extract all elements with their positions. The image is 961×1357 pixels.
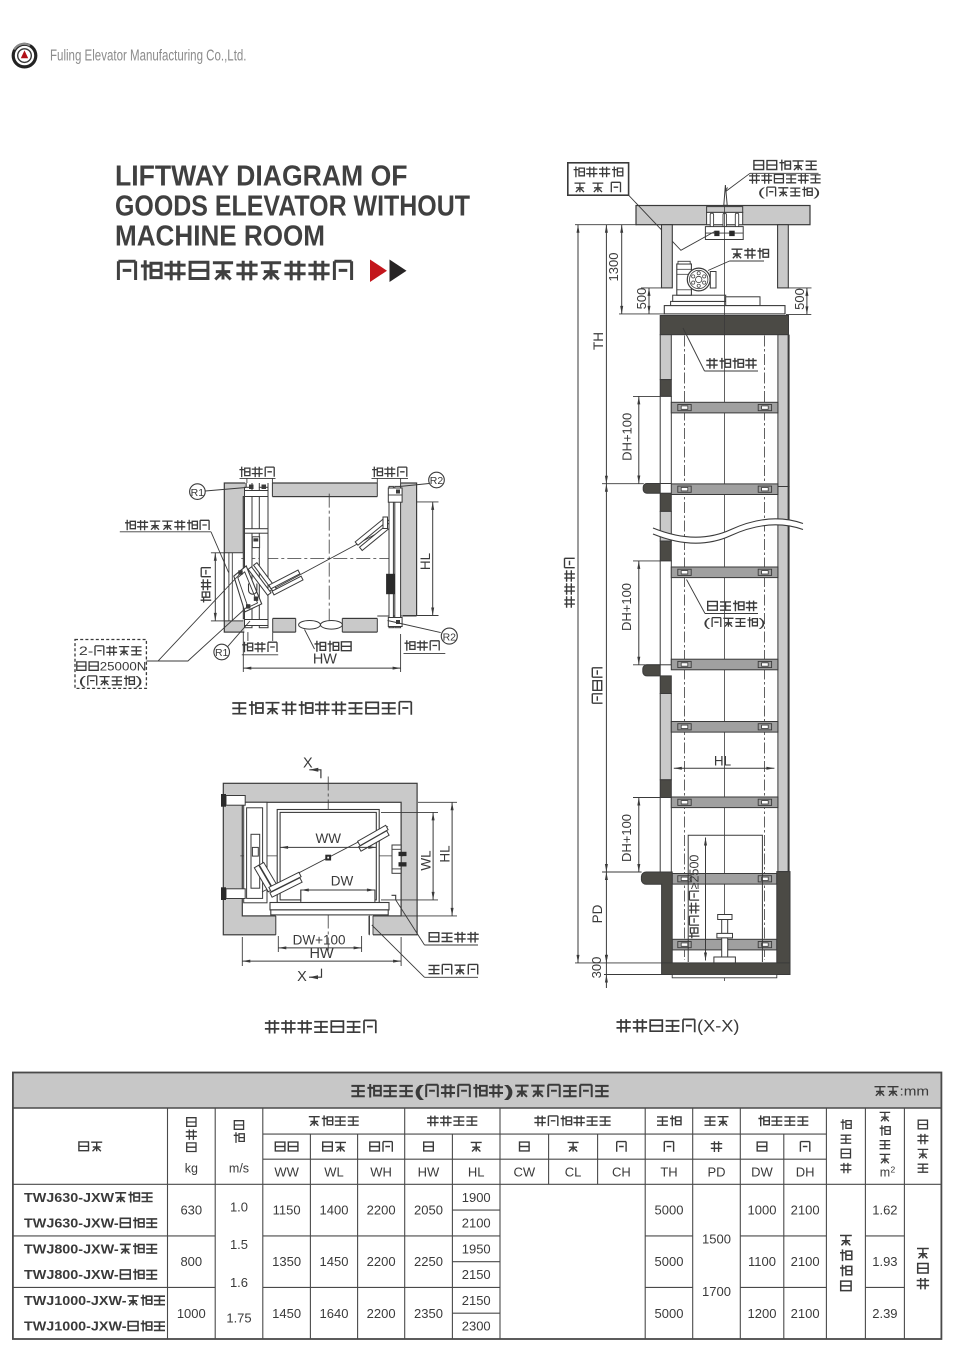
svg-text:1350: 1350: [272, 1254, 301, 1269]
svg-text:HW: HW: [310, 946, 334, 962]
svg-text:1000: 1000: [748, 1203, 777, 1218]
svg-text:TH: TH: [591, 332, 606, 350]
svg-text:HL: HL: [468, 1164, 485, 1179]
svg-text:(X-X): (X-X): [697, 1018, 740, 1036]
svg-text:1450: 1450: [272, 1306, 301, 1321]
svg-text:TH: TH: [660, 1164, 677, 1179]
svg-text:1.75: 1.75: [226, 1311, 251, 1326]
svg-text:): ): [135, 674, 143, 688]
svg-text:m/s: m/s: [229, 1162, 249, 1176]
svg-text:2100: 2100: [462, 1216, 491, 1231]
svg-text:TWJ1000-JXW-: TWJ1000-JXW-: [24, 1319, 127, 1334]
svg-text:1000: 1000: [177, 1306, 206, 1321]
svg-text:2200: 2200: [367, 1306, 396, 1321]
svg-text:CL: CL: [565, 1164, 582, 1179]
svg-text:2250: 2250: [414, 1254, 443, 1269]
svg-text:2200: 2200: [367, 1203, 396, 1218]
svg-text:2350: 2350: [414, 1306, 443, 1321]
svg-text:): ): [758, 616, 765, 630]
svg-text::mm: :mm: [900, 1084, 930, 1099]
svg-text:DH+100: DH+100: [620, 413, 635, 461]
svg-text:DH: DH: [796, 1164, 815, 1179]
svg-text:300: 300: [589, 957, 604, 979]
svg-text:1.6: 1.6: [230, 1275, 248, 1290]
svg-text:5000: 5000: [655, 1306, 684, 1321]
svg-text:1100: 1100: [748, 1254, 776, 1269]
svg-text:(: (: [414, 1084, 425, 1101]
svg-text:WL: WL: [324, 1164, 344, 1179]
svg-text:PD: PD: [590, 904, 605, 923]
svg-text:WL: WL: [419, 850, 434, 871]
svg-text:1200: 1200: [748, 1306, 777, 1321]
svg-text:1400: 1400: [320, 1203, 349, 1218]
svg-text:MACHINE ROOM: MACHINE ROOM: [115, 221, 325, 253]
svg-text:2150: 2150: [462, 1267, 491, 1282]
svg-text:DW: DW: [331, 874, 354, 889]
svg-text:LIFTWAY DIAGRAM OF: LIFTWAY DIAGRAM OF: [115, 161, 408, 193]
svg-text:500: 500: [634, 288, 649, 310]
svg-text:kg: kg: [185, 1162, 198, 1176]
svg-text:CH: CH: [612, 1164, 631, 1179]
svg-text:800: 800: [180, 1254, 202, 1269]
svg-text:2200: 2200: [367, 1254, 396, 1269]
svg-text:5000: 5000: [655, 1203, 684, 1218]
svg-text:2150: 2150: [462, 1293, 491, 1308]
svg-text:X: X: [297, 969, 307, 985]
svg-text:25000N: 25000N: [100, 660, 147, 674]
svg-text:): ): [504, 1084, 514, 1101]
svg-text:500: 500: [792, 288, 807, 310]
svg-text:1.62: 1.62: [872, 1203, 897, 1218]
svg-text:R1: R1: [191, 487, 205, 499]
svg-text:(: (: [703, 616, 710, 630]
svg-text:1450: 1450: [320, 1254, 349, 1269]
svg-text:Fuling Elevator Manufacturing: Fuling Elevator Manufacturing Co.,Ltd.: [50, 48, 247, 65]
svg-text:WW: WW: [316, 831, 342, 846]
svg-text:R1: R1: [215, 647, 229, 659]
svg-text:m: m: [880, 1166, 890, 1180]
svg-text:): ): [813, 185, 820, 199]
svg-text:1300: 1300: [606, 253, 621, 282]
svg-text:1.0: 1.0: [230, 1200, 248, 1215]
svg-text:DW: DW: [751, 1164, 773, 1179]
svg-text:CW: CW: [513, 1164, 535, 1179]
svg-text:1.5: 1.5: [230, 1237, 248, 1252]
svg-text:2100: 2100: [791, 1306, 820, 1321]
svg-text:2100: 2100: [791, 1203, 820, 1218]
svg-text:1950: 1950: [462, 1241, 491, 1256]
svg-text:2.39: 2.39: [872, 1306, 897, 1321]
svg-text:(: (: [758, 185, 765, 199]
svg-text:TWJ630-JXW-: TWJ630-JXW-: [24, 1216, 119, 1231]
svg-text:630: 630: [180, 1203, 202, 1218]
svg-text:R2: R2: [443, 631, 457, 643]
svg-text:1500: 1500: [702, 1232, 731, 1247]
svg-text:TWJ800-JXW-: TWJ800-JXW-: [24, 1241, 119, 1256]
svg-text:HL: HL: [438, 845, 453, 863]
svg-text:HW: HW: [313, 652, 337, 668]
svg-text:1900: 1900: [462, 1190, 491, 1205]
svg-text:WH: WH: [370, 1164, 392, 1179]
svg-text:2: 2: [891, 1165, 896, 1175]
svg-text:R2: R2: [430, 475, 444, 487]
svg-text:X: X: [303, 755, 313, 771]
svg-text:DH+100: DH+100: [619, 583, 634, 631]
svg-text:TWJ630-JXW: TWJ630-JXW: [24, 1190, 115, 1205]
svg-text:TWJ1000-JXW-: TWJ1000-JXW-: [24, 1293, 127, 1308]
svg-text:WW: WW: [274, 1164, 299, 1179]
svg-text:5000: 5000: [655, 1254, 684, 1269]
svg-text:≥2500: ≥2500: [688, 855, 702, 890]
svg-text:2100: 2100: [791, 1254, 820, 1269]
svg-text:HL: HL: [714, 754, 732, 769]
svg-text:2050: 2050: [414, 1203, 443, 1218]
svg-text:HL: HL: [418, 552, 433, 570]
svg-text:DH+100: DH+100: [619, 814, 634, 862]
svg-text:GOODS ELEVATOR WITHOUT: GOODS ELEVATOR WITHOUT: [115, 191, 471, 223]
svg-text:PD: PD: [707, 1164, 725, 1179]
svg-text:TWJ800-JXW-: TWJ800-JXW-: [24, 1267, 119, 1282]
svg-text:1640: 1640: [320, 1306, 349, 1321]
svg-text:2-: 2-: [79, 644, 93, 658]
svg-text:HW: HW: [418, 1164, 440, 1179]
svg-text:1150: 1150: [273, 1203, 301, 1218]
svg-text:1.93: 1.93: [872, 1254, 897, 1269]
svg-text:1700: 1700: [702, 1284, 731, 1299]
svg-text:2300: 2300: [462, 1319, 491, 1334]
